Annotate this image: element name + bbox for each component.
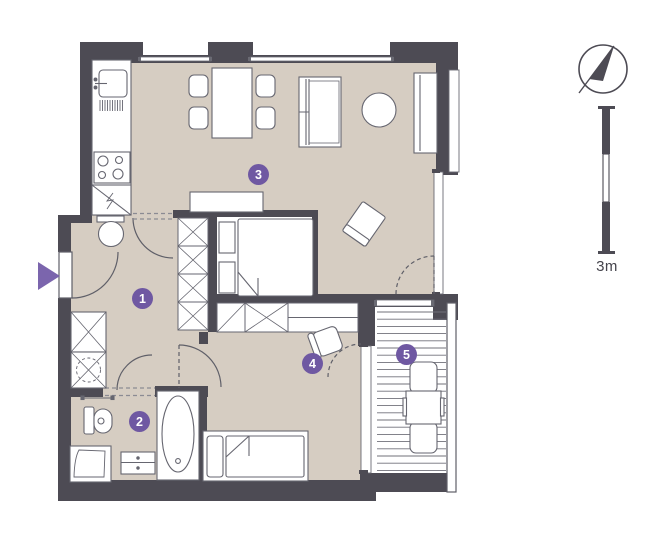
floor-plan-drawing [0, 0, 646, 552]
bedside-table [219, 222, 235, 253]
balcony-railing [447, 303, 456, 492]
hall-stool [99, 222, 124, 247]
living-balcony-glazing [434, 172, 443, 294]
tv-unit [414, 73, 437, 153]
balcony-table-leaf [403, 398, 407, 416]
floor-plan-page: 1 2 3 4 5 3m [0, 0, 646, 552]
room-marker-4: 4 [302, 353, 323, 374]
toilet-tank [84, 407, 94, 434]
dining-chair [256, 75, 275, 97]
room-marker-1: 1 [132, 288, 153, 309]
kitchen [92, 60, 131, 222]
balcony-table [406, 391, 441, 424]
pillow [207, 436, 223, 477]
coffee-table [362, 93, 396, 127]
entrance-arrow-icon [38, 262, 60, 290]
compass-icon [579, 45, 627, 93]
room-marker-2: 2 [129, 411, 150, 432]
cooktop [94, 152, 130, 183]
window-top-left [143, 42, 208, 55]
room-marker-5: 5 [396, 344, 417, 365]
window-top-right [253, 42, 390, 55]
balcony-chair [410, 422, 437, 453]
living-balcony-threshold [376, 300, 434, 306]
double-bed [238, 219, 313, 296]
headboard-shelf [190, 192, 263, 212]
bathtub [157, 391, 199, 480]
toilet-bowl [94, 409, 112, 433]
scale-bar [598, 106, 615, 254]
window-right [449, 70, 459, 172]
room-marker-3: 3 [248, 164, 269, 185]
single-bed-mattress [226, 436, 304, 477]
dining-chair [189, 75, 208, 97]
balcony-table-leaf [441, 398, 445, 416]
dining-chair [189, 107, 208, 129]
dining-table [212, 68, 252, 138]
bedroom-balcony-glazing [361, 346, 371, 473]
balcony-chair [410, 362, 437, 393]
scale-label: 3m [592, 258, 622, 275]
entrance-door [59, 252, 72, 298]
dining-chair [256, 107, 275, 129]
bedside-table [219, 262, 235, 293]
